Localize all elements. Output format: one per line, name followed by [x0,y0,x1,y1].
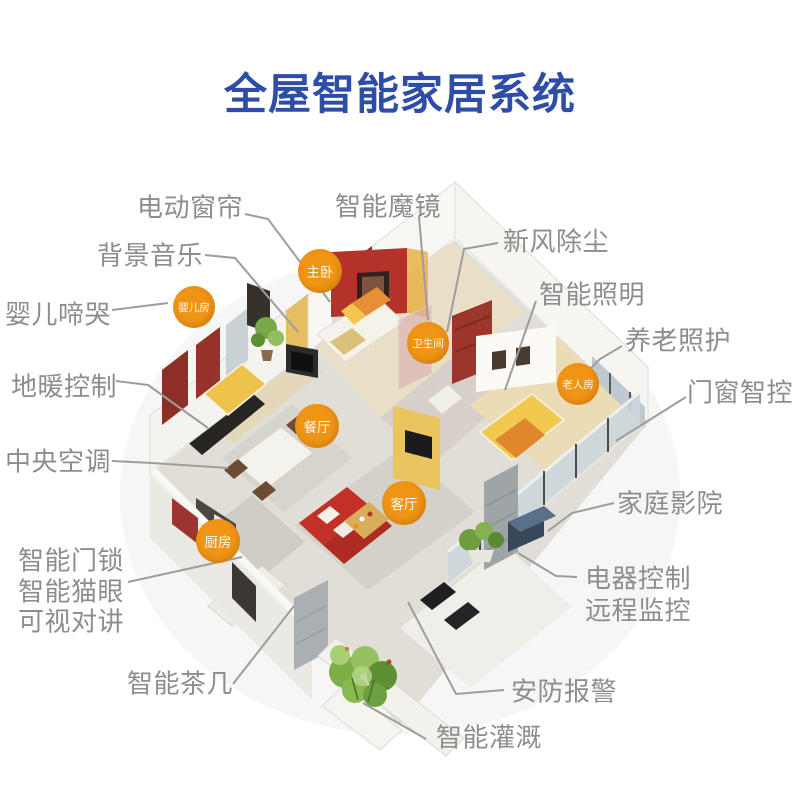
label-door-window: 门窗智控 [687,373,793,410]
label-elder-care: 养老照护 [625,321,731,358]
label-smart-mirror: 智能魔镜 [335,187,441,224]
label-central-ac: 中央空调 [5,442,111,479]
room-badge-bathroom: 卫生间 [407,322,449,364]
label-remote-monitor: 远程监控 [585,591,691,628]
label-video-intercom: 可视对讲 [18,602,124,639]
label-electric-curtain: 电动窗帘 [137,188,243,225]
room-badge-elder-room: 老人房 [557,363,599,405]
label-smart-irrigation: 智能灌溉 [436,718,542,755]
room-badge-nursery: 婴儿房 [173,286,215,328]
tv-cabinet [286,344,318,378]
room-badge-master-bedroom: 主卧 [298,249,342,293]
label-baby-cry: 婴儿啼哭 [5,295,111,332]
label-background-music: 背景音乐 [97,236,203,273]
leader-baby-cry [112,303,168,310]
room-badge-living-room: 客厅 [382,481,426,525]
smart-home-infographic: 全屋智能家居系统 电动窗帘 智能魔镜 背景音乐 新风除尘 婴儿啼哭 智能照明 养… [0,0,800,800]
page-title: 全屋智能家居系统 [0,60,800,122]
label-home-theater: 家庭影院 [617,484,723,521]
label-security-alarm: 安防报警 [511,672,617,709]
label-smart-lighting: 智能照明 [539,275,645,312]
room-badge-dining-room: 餐厅 [295,404,339,448]
label-fresh-air: 新风除尘 [503,222,609,259]
label-smart-tea-table: 智能茶几 [127,664,233,701]
room-badge-kitchen: 厨房 [196,519,240,563]
label-floor-heating: 地暖控制 [11,367,117,404]
